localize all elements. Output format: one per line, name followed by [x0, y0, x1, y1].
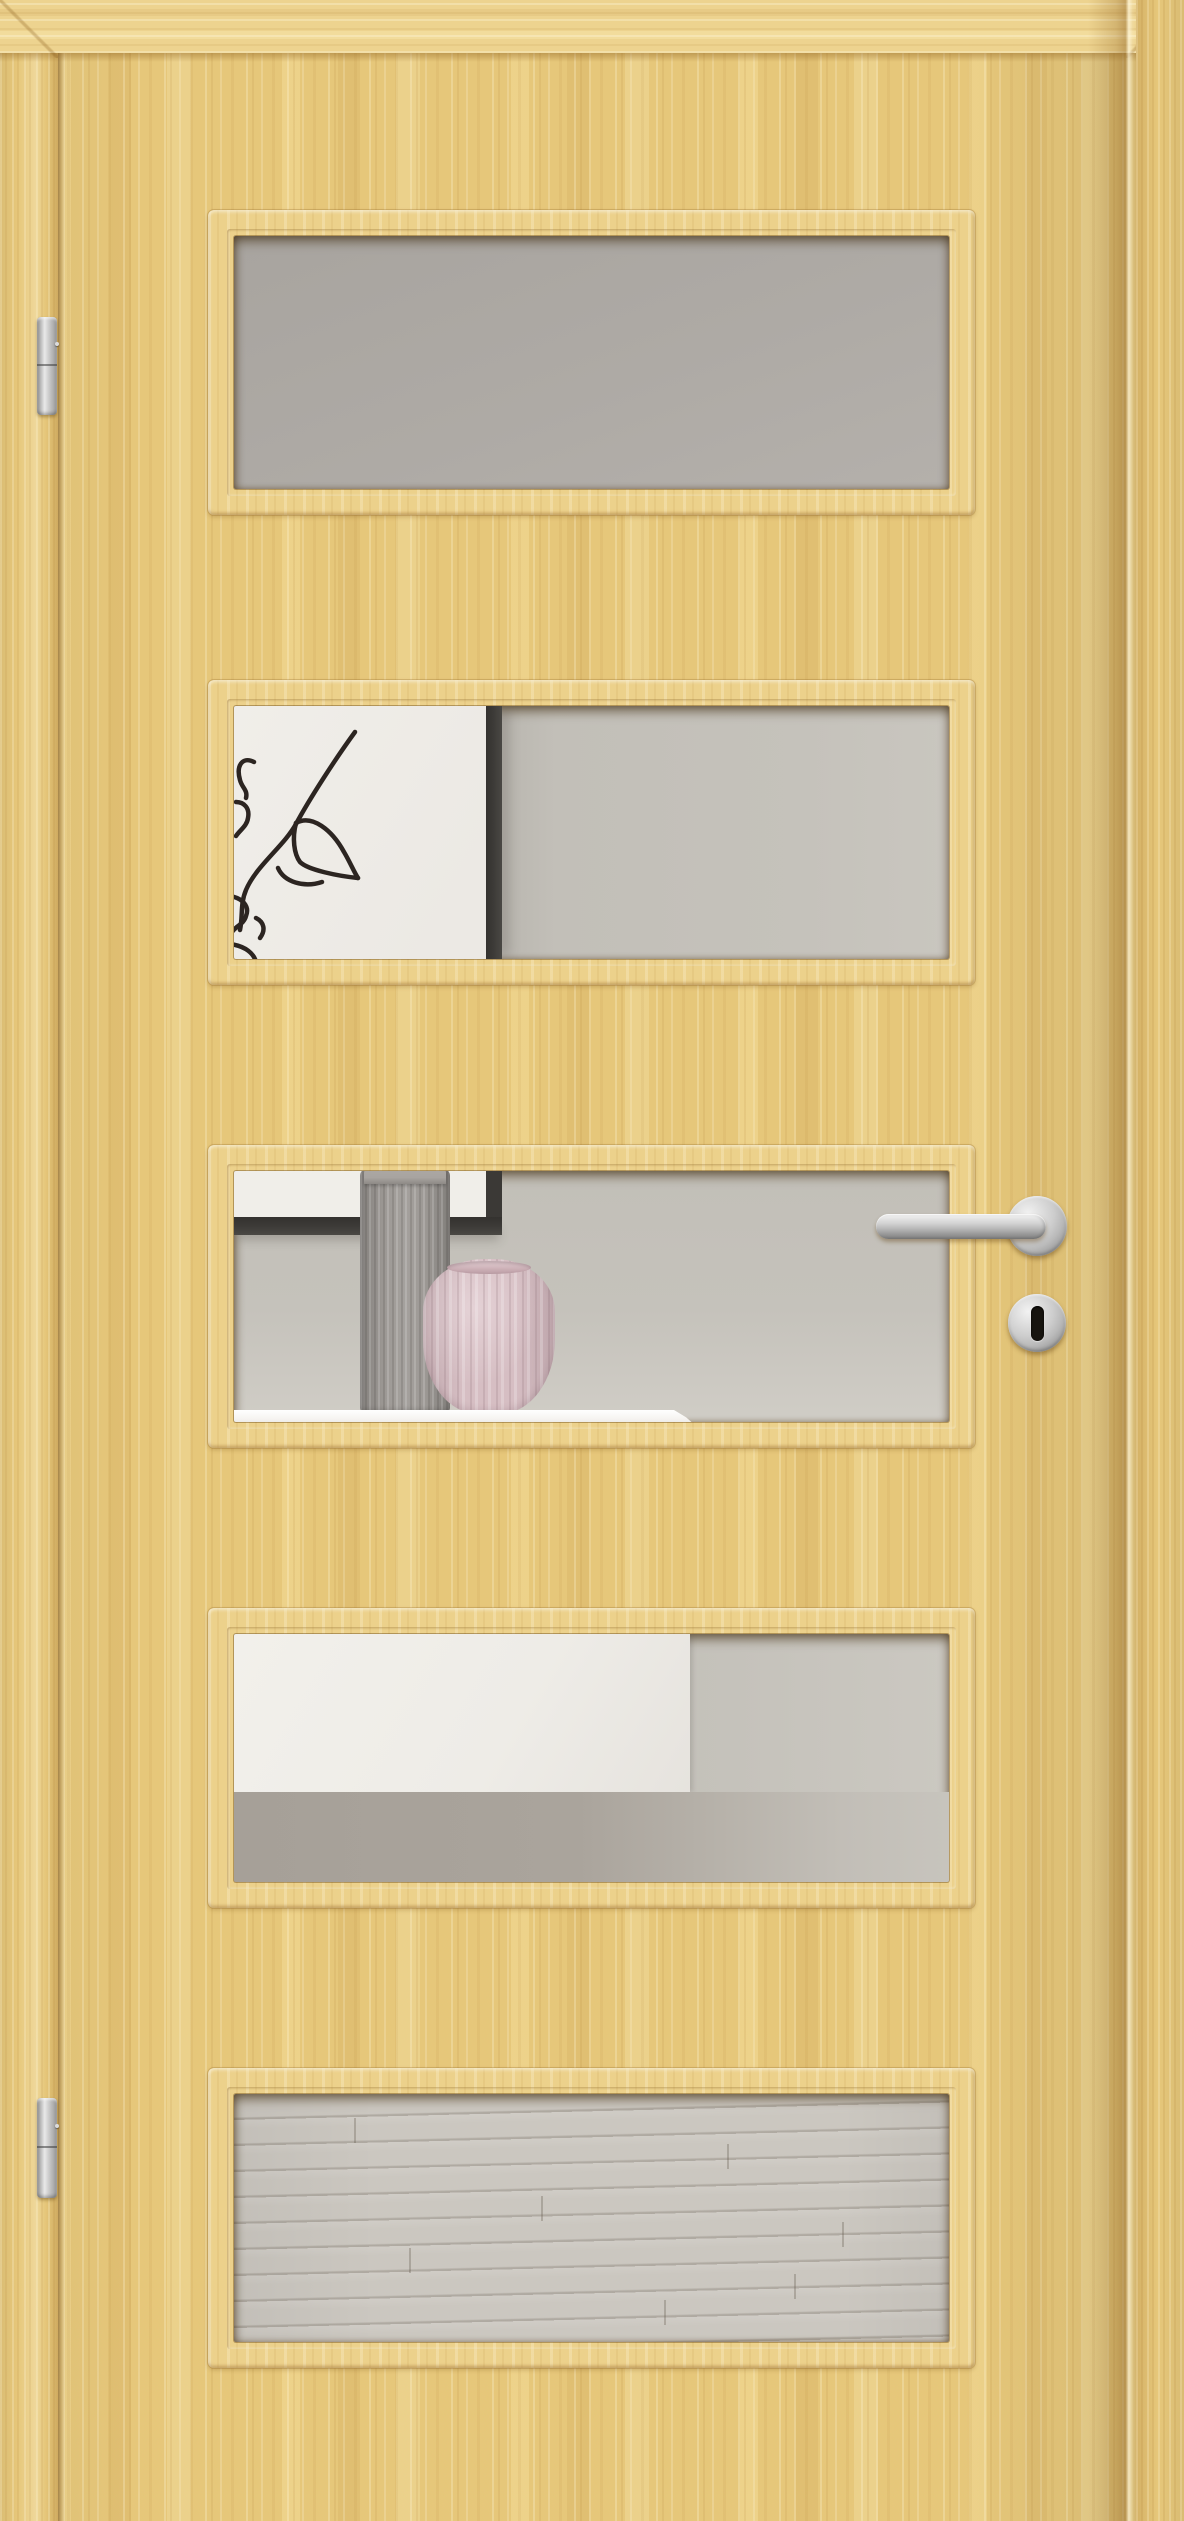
frosted-glass-4 — [234, 1634, 949, 1882]
frosted-glass-2 — [234, 706, 949, 959]
line-art-paper — [234, 706, 486, 959]
door-leaf — [0, 0, 1184, 2521]
pink-ribbed-vase — [423, 1259, 555, 1414]
hinge-top — [37, 317, 57, 415]
door-gap-seam — [58, 0, 65, 2521]
pink-vase-rim — [447, 1261, 531, 1274]
floor-plank-joint — [842, 2222, 844, 2247]
door-product-photo — [0, 0, 1184, 2521]
floor-plank-joint — [409, 2248, 411, 2273]
hinge-bottom — [37, 2098, 57, 2198]
glazed-lite-1 — [208, 210, 975, 515]
keyhole-escutcheon — [1008, 1294, 1066, 1352]
glazed-lite-5 — [208, 2068, 975, 2368]
glazed-lite-3 — [208, 1145, 975, 1448]
glazed-lite-4 — [208, 1608, 975, 1908]
floor-plank-joint — [727, 2144, 729, 2169]
door-right-stile — [1136, 0, 1184, 2521]
frosted-glass-5 — [234, 2094, 949, 2342]
floor-plank-joint — [541, 2196, 543, 2221]
picture-frame-right-edge — [486, 706, 502, 959]
floor-plank-joint — [354, 2118, 356, 2143]
white-sideboard-top — [234, 1410, 696, 1422]
shadow-under-sideboard — [234, 1792, 949, 1882]
abstract-face-line-drawing — [234, 706, 486, 959]
frosted-glass-1 — [234, 236, 949, 489]
floor-plank-joint — [794, 2274, 796, 2299]
frosted-glass-3 — [234, 1171, 949, 1422]
door-top-rail — [0, 0, 1184, 53]
white-sideboard-body — [234, 1634, 690, 1792]
door-right-bevel — [1088, 0, 1136, 2521]
floor-plank-joint — [664, 2300, 666, 2325]
gray-vase-cap — [364, 1171, 446, 1184]
lever-handle — [876, 1214, 1046, 1239]
miter-joint-top-left — [0, 0, 58, 58]
keyhole — [1031, 1306, 1044, 1341]
glazed-lite-2 — [208, 680, 975, 985]
